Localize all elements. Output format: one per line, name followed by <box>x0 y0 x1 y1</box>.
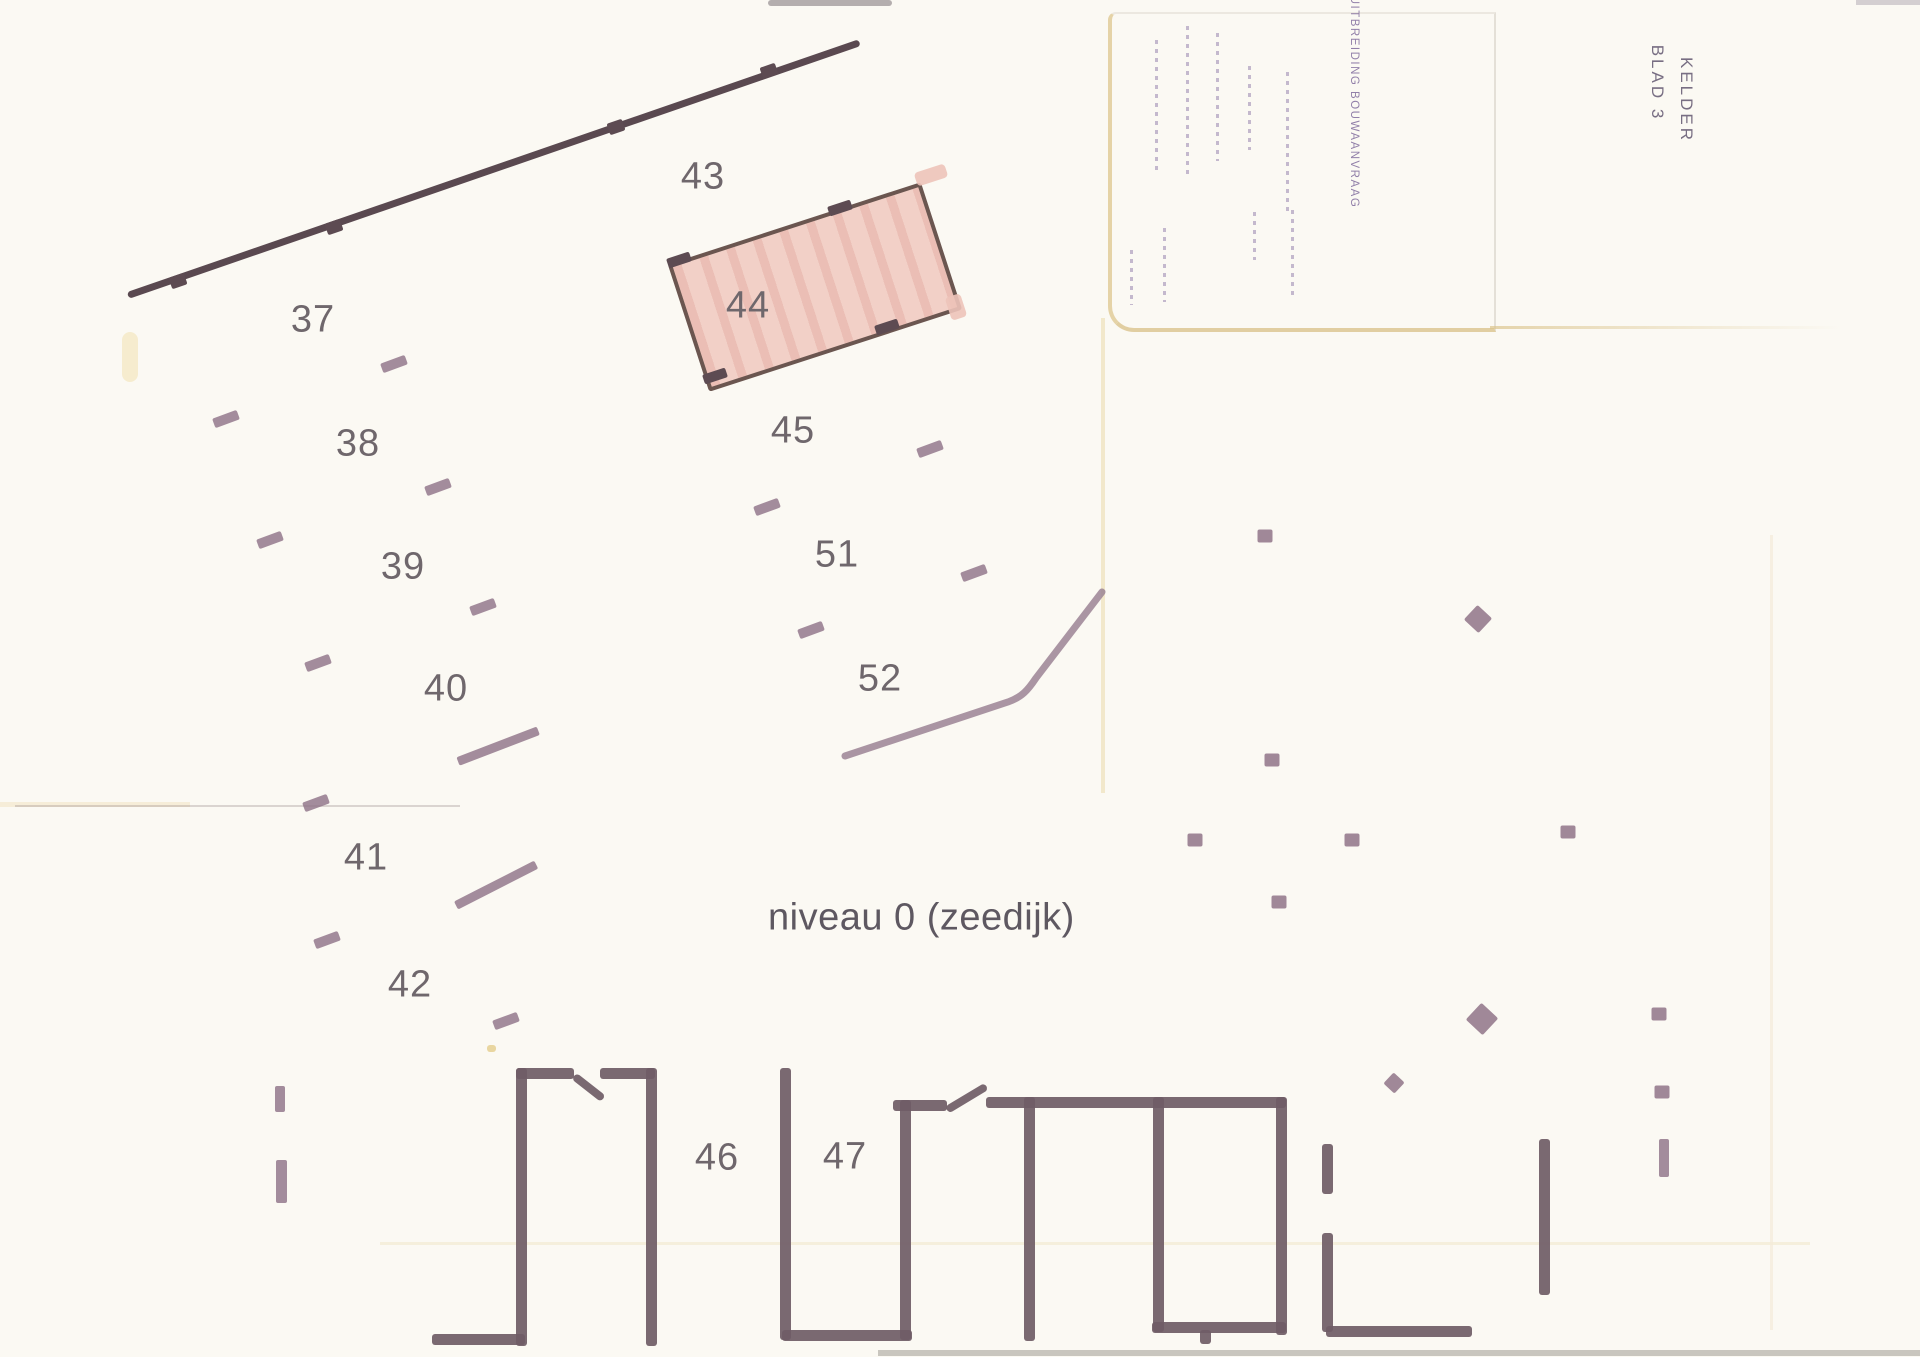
unit-number-label: 44 <box>726 285 770 328</box>
garage-wall <box>1200 1330 1211 1344</box>
unit-number-label: 52 <box>858 658 902 701</box>
pillar-mark <box>1659 1139 1669 1177</box>
pillar-dot <box>1188 834 1203 847</box>
garage-wall <box>1322 1233 1333 1332</box>
boundary-wall-stub <box>606 119 625 136</box>
room-border-tick <box>827 200 853 217</box>
door-leaf <box>945 1083 989 1114</box>
pillar-mark <box>380 355 408 373</box>
garage-wall <box>900 1100 911 1340</box>
stamp-text-column <box>1155 40 1158 175</box>
stamp-text-column <box>1286 72 1289 215</box>
pillar-dot <box>1561 826 1576 839</box>
pillar-mark <box>304 654 332 672</box>
garage-wall <box>1539 1139 1550 1295</box>
boundary-wall-stub <box>168 273 187 290</box>
stamp-text-column <box>1130 250 1133 305</box>
stamp-text-column <box>1248 66 1251 150</box>
unit-number-label: 51 <box>815 534 859 577</box>
pillar-mark <box>256 531 284 549</box>
pillar-mark <box>753 498 781 516</box>
room-border-tick <box>874 319 900 336</box>
pillar-dot <box>1652 1008 1667 1021</box>
pillar-dot <box>1258 530 1273 543</box>
wall-mark <box>454 861 538 910</box>
pillar-dot <box>1655 1086 1670 1099</box>
garage-wall <box>1276 1097 1287 1335</box>
boundary-wall-stub <box>759 63 778 80</box>
stamp-text-column <box>1253 212 1256 260</box>
unit-number-label: 38 <box>336 423 380 466</box>
pillar-mark <box>212 410 240 428</box>
scanned-floor-plan: UITBREIDING BOUWAANVRAAG BLAD 3 KELDER 3… <box>0 0 1920 1357</box>
wall-mark <box>456 726 540 765</box>
garage-wall <box>516 1068 527 1346</box>
level-caption: niveau 0 (zeedijk) <box>768 897 1075 940</box>
stamp-text-column <box>1216 33 1219 161</box>
pillar-mark <box>424 478 452 496</box>
boundary-wall-stub <box>324 219 343 236</box>
stamp-text-column <box>1291 210 1294 300</box>
stamp-text-column <box>1163 228 1166 302</box>
pillar-diamond <box>1464 605 1492 633</box>
unit-number-label: 47 <box>823 1136 867 1179</box>
pillar-dot <box>1272 896 1287 909</box>
stamp-text-column <box>1186 26 1189 176</box>
plan-geometry-layer: 37383940414243444546475152 <box>0 0 1920 1357</box>
garage-wall <box>432 1334 525 1345</box>
garage-wall <box>646 1068 657 1346</box>
pillar-mark <box>276 1160 287 1203</box>
unit-number-label: 37 <box>291 299 335 342</box>
pillar-mark <box>916 440 944 458</box>
garage-wall <box>1024 1097 1035 1341</box>
pillar-diamond <box>1383 1072 1404 1093</box>
room-border-tick <box>666 252 692 269</box>
unit-number-label: 39 <box>381 546 425 589</box>
marker-overflow <box>945 293 968 321</box>
pillar-mark <box>797 621 825 639</box>
garage-wall <box>1153 1097 1164 1332</box>
pillar-dot <box>1265 754 1280 767</box>
room-border-tick <box>702 368 728 385</box>
pillar-dot <box>1345 834 1360 847</box>
pillar-diamond <box>1466 1003 1499 1036</box>
garage-wall <box>782 1330 912 1341</box>
garage-wall <box>1326 1326 1472 1337</box>
unit-number-label: 40 <box>424 668 468 711</box>
pillar-mark <box>492 1012 520 1030</box>
pillar-mark <box>302 794 330 812</box>
pillar-mark <box>275 1086 285 1112</box>
pillar-mark <box>960 564 988 582</box>
marker-overflow <box>914 163 949 186</box>
garage-wall <box>1322 1144 1333 1194</box>
boundary-wall <box>127 39 861 299</box>
pillar-mark <box>313 931 341 949</box>
garage-wall <box>780 1068 791 1340</box>
unit-number-label: 45 <box>771 410 815 453</box>
garage-wall <box>1152 1322 1286 1333</box>
unit-number-label: 46 <box>695 1137 739 1180</box>
pillar-mark <box>469 598 497 616</box>
unit-number-label: 42 <box>388 964 432 1007</box>
unit-number-label: 41 <box>344 837 388 880</box>
unit-number-label: 43 <box>681 156 725 199</box>
